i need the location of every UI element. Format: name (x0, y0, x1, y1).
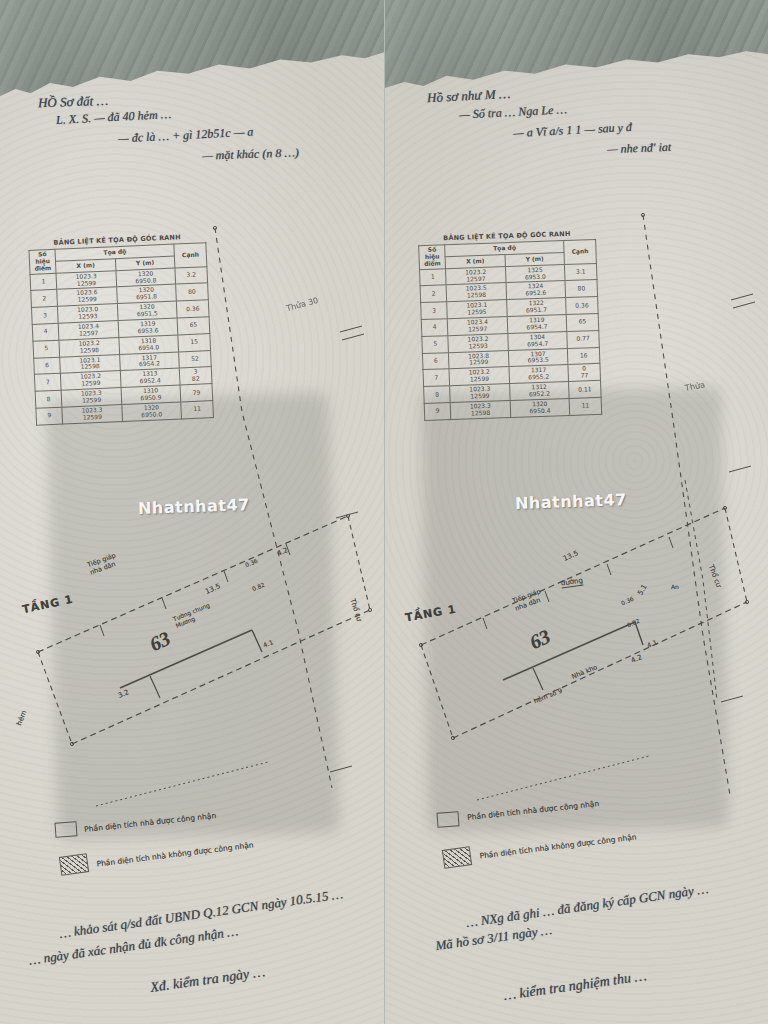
document-page-right: Hồ sơ như M … — Số tra … Nga Le … — a Vĩ… (384, 0, 768, 1024)
photo-of-survey-documents: HỒ Sơ đất … L. X. S. — đã 40 hẻm … — đc … (0, 0, 768, 1024)
document-page-left: HỒ Sơ đất … L. X. S. — đã 40 hẻm … — đc … (0, 0, 384, 1024)
camera-shadow (46, 392, 339, 839)
legend-swatch-not-recognized (442, 846, 472, 869)
paper-sheet: Hồ sơ như M … — Số tra … Nga Le … — a Vĩ… (385, 0, 768, 1024)
paper-sheet: HỒ Sơ đất … L. X. S. — đã 40 hẻm … — đc … (0, 0, 384, 1024)
legend-swatch-not-recognized (59, 853, 89, 876)
camera-shadow (421, 387, 729, 832)
watermark: Nhatnhat47 (138, 495, 250, 518)
watermark: Nhatnhat47 (515, 490, 627, 513)
